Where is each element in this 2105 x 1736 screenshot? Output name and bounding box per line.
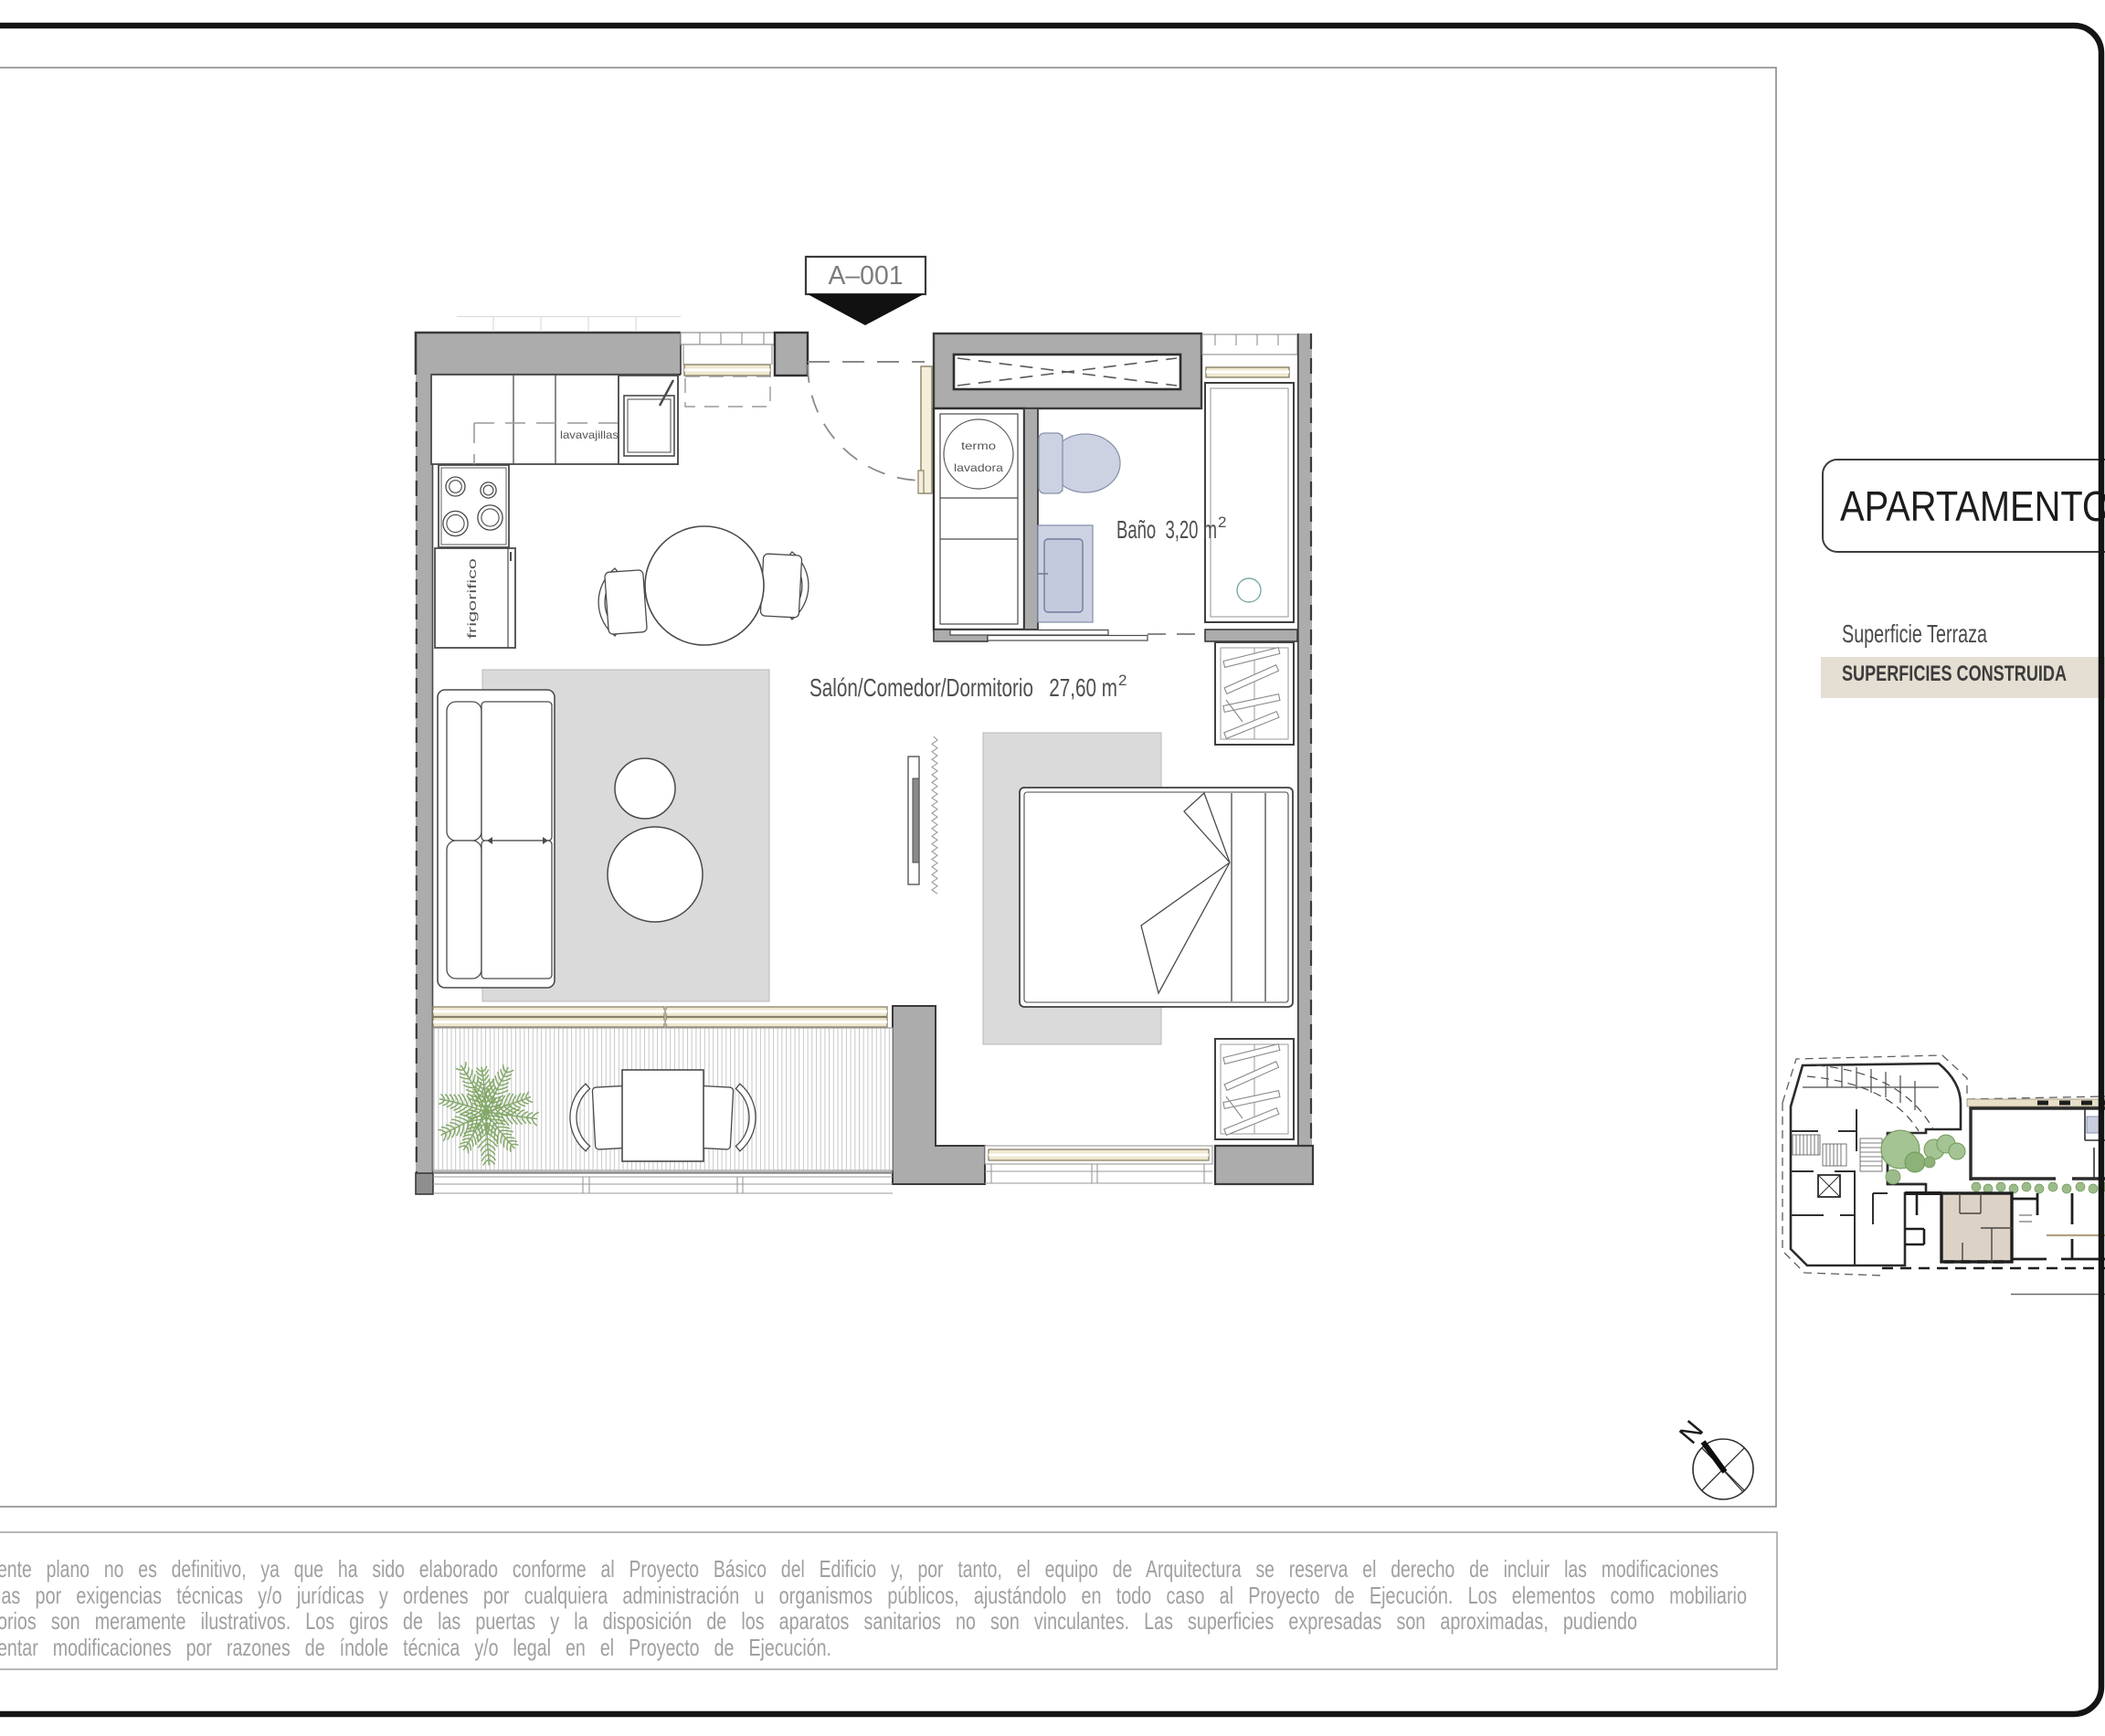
svg-text:ias por exigencias técnicas y/: ias por exigencias técnicas y/o jurídica… xyxy=(0,1582,1747,1609)
svg-text:A–001: A–001 xyxy=(829,261,904,291)
svg-text:2: 2 xyxy=(1218,513,1226,531)
svg-text:lavavajillas: lavavajillas xyxy=(560,429,619,441)
svg-text:lavadora: lavadora xyxy=(954,461,1003,474)
svg-text:termo: termo xyxy=(961,439,996,452)
svg-text:Superficie Terraza: Superficie Terraza xyxy=(1842,619,1987,648)
svg-text:Baño 3,20 m: Baño 3,20 m xyxy=(1116,515,1217,544)
svg-text:Salón/Comedor/Dormitorio 27,: Salón/Comedor/Dormitorio 27,60 m xyxy=(809,673,1117,702)
svg-text:orios son meramente ilustrativ: orios son meramente ilustrativos. Los gi… xyxy=(0,1607,1637,1635)
svg-text:SUPERFICIES CONSTRUIDA: SUPERFICIES CONSTRUIDA xyxy=(1842,662,2067,686)
svg-text:entar modificaciones por razon: entar modificaciones por razones de índo… xyxy=(0,1634,831,1661)
svg-text:APARTAMENTO: APARTAMENTO xyxy=(1840,482,2105,530)
svg-text:frigorifico: frigorifico xyxy=(465,558,479,639)
svg-text:ente plano no es definitivo, y: ente plano no es definitivo, ya que ha s… xyxy=(0,1555,1719,1583)
svg-text:2: 2 xyxy=(1118,672,1127,689)
